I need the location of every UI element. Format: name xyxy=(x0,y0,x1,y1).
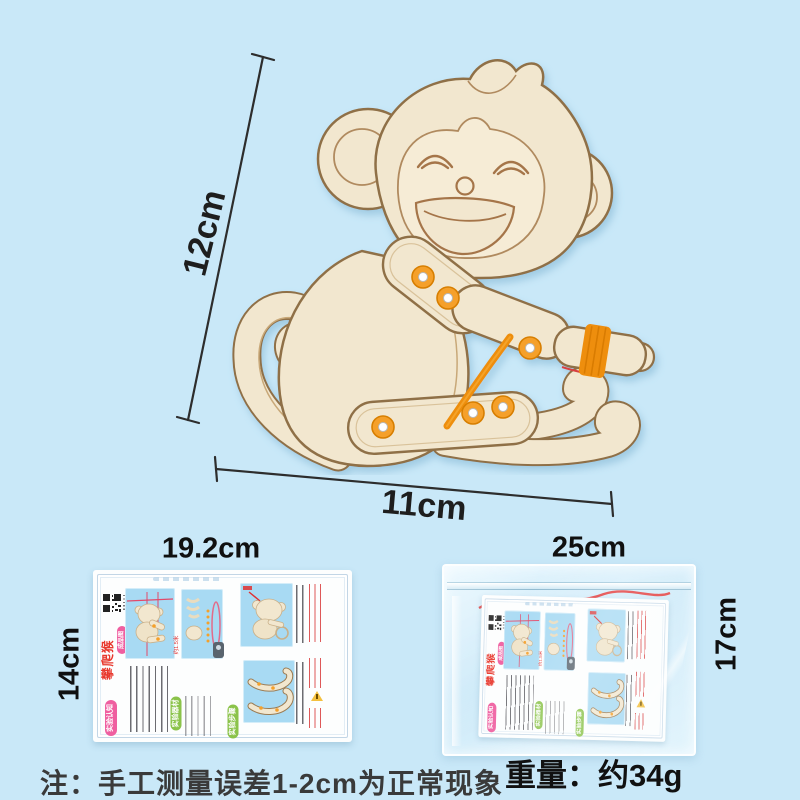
band-length-note: 约1.5米 xyxy=(173,632,181,658)
monkey-hand-piece xyxy=(551,323,654,378)
warning-text-upper xyxy=(309,584,322,642)
steps-text-upper xyxy=(627,611,635,659)
panel-legs-art xyxy=(587,672,626,725)
warning-text-mid xyxy=(635,672,645,697)
weight-text: 重量：约34g xyxy=(505,750,682,795)
warning-triangle-icon xyxy=(311,691,323,701)
qr-code-icon xyxy=(103,594,121,612)
panel-leg-pieces xyxy=(243,660,295,723)
panel-legs-art xyxy=(243,660,295,723)
section-steps: 实验步骤 xyxy=(575,709,584,737)
card-width-label: 19.2cm xyxy=(162,533,260,566)
card-top-ornament xyxy=(153,577,223,581)
panel-finished-art xyxy=(125,588,175,659)
product-photo: 12cm 11cm 19.2cm 25cm 14cm 17cm 攀爬猴 成品图 xyxy=(0,0,800,800)
panel-rope-art xyxy=(240,583,293,647)
materials-list xyxy=(545,701,568,735)
plastic-clip xyxy=(213,642,224,658)
bag-card-slot: 攀爬猴 成品图 约1.5米 xyxy=(478,595,669,742)
panel-leg-pieces xyxy=(587,672,626,725)
panel-rope-diagram xyxy=(240,583,293,647)
plastic-clip xyxy=(567,657,575,670)
steps-text-lower xyxy=(625,675,633,726)
bag-fold-highlight xyxy=(452,596,462,746)
qr-code-icon xyxy=(488,615,501,630)
card-title: 攀爬猴 xyxy=(485,653,496,686)
warning-text-mid xyxy=(309,658,322,688)
card-height-label: 14cm xyxy=(54,627,87,701)
packaging-bag: 攀爬猴 成品图 约1.5米 xyxy=(442,564,696,756)
section-materials: 实验器材 xyxy=(171,697,182,731)
warning-triangle-icon xyxy=(637,699,646,707)
materials-list xyxy=(185,696,215,736)
section-steps: 实验步骤 xyxy=(228,705,239,739)
cognition-paragraph xyxy=(505,675,534,730)
card-top-ornament xyxy=(525,602,576,607)
instruction-card: 攀爬猴 成品图 约1.5米 xyxy=(478,595,669,742)
steps-text-upper xyxy=(296,585,305,643)
section-cognition: 实验认知 xyxy=(487,703,496,733)
bag-height-label: 17cm xyxy=(711,597,744,671)
monkey-craft-figure xyxy=(210,45,670,475)
instruction-card-holder: 攀爬猴 成品图 约1.5米 xyxy=(93,570,352,742)
section-cognition: 实验认知 xyxy=(105,700,117,736)
panel-finished-art xyxy=(503,610,541,670)
warning-text-upper xyxy=(636,611,647,659)
bag-width-label: 25cm xyxy=(552,532,626,565)
cognition-paragraph xyxy=(130,666,168,732)
instruction-card: 攀爬猴 成品图 约1.5米 xyxy=(93,570,352,742)
panel-rope-diagram xyxy=(586,609,626,663)
steps-text-lower xyxy=(296,662,305,724)
measurement-note: 注：手工测量误差1-2cm为正常现象 xyxy=(40,762,503,800)
card-title: 攀爬猴 xyxy=(101,640,115,680)
panel-finished-product xyxy=(125,588,175,659)
panel-finished-product xyxy=(503,610,541,670)
section-materials: 实验器材 xyxy=(534,701,543,729)
warning-text-lower xyxy=(309,708,322,728)
panel-rope-art xyxy=(586,609,626,663)
figure-width-label: 11cm xyxy=(380,483,468,529)
